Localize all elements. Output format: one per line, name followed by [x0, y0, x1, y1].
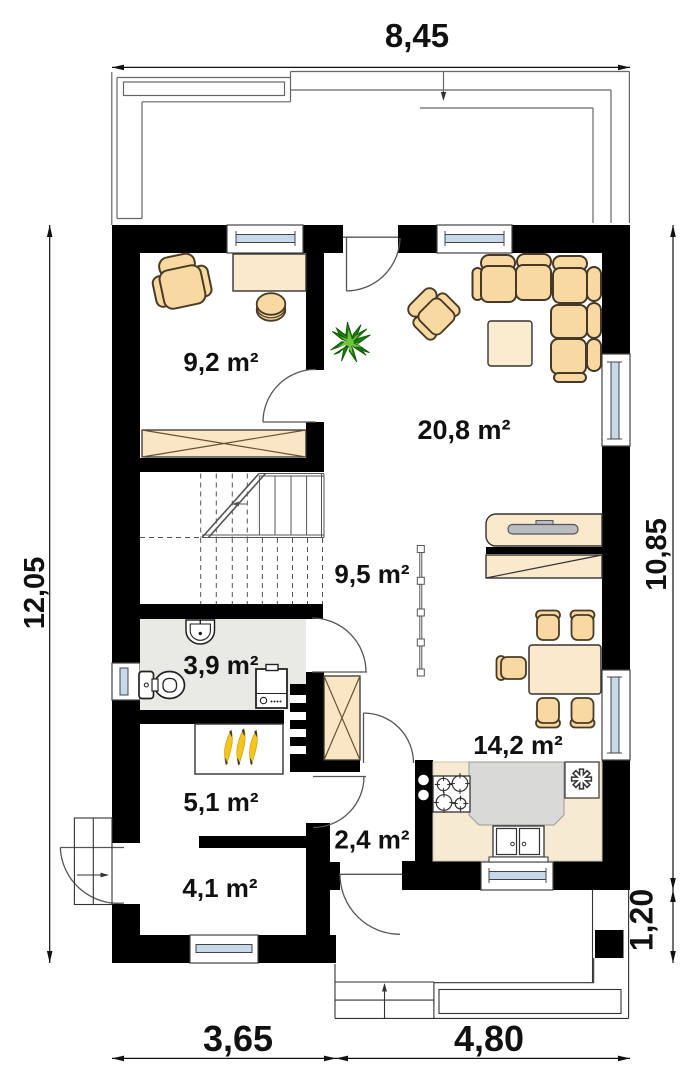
svg-text:20,8 m²: 20,8 m²: [417, 415, 510, 445]
svg-text:12,05: 12,05: [19, 557, 51, 630]
svg-text:9,2 m²: 9,2 m²: [183, 347, 258, 377]
svg-text:14,2 m²: 14,2 m²: [473, 730, 563, 760]
svg-text:3,9 m²: 3,9 m²: [183, 650, 258, 680]
svg-text:10,85: 10,85: [641, 518, 673, 591]
svg-text:3,65: 3,65: [203, 1018, 273, 1059]
svg-text:2,4 m²: 2,4 m²: [334, 825, 409, 855]
svg-text:5,1 m²: 5,1 m²: [183, 787, 258, 817]
svg-text:4,1 m²: 4,1 m²: [182, 873, 257, 903]
svg-text:9,5 m²: 9,5 m²: [334, 559, 409, 589]
svg-text:4,80: 4,80: [454, 1018, 524, 1059]
svg-text:8,45: 8,45: [385, 17, 449, 54]
